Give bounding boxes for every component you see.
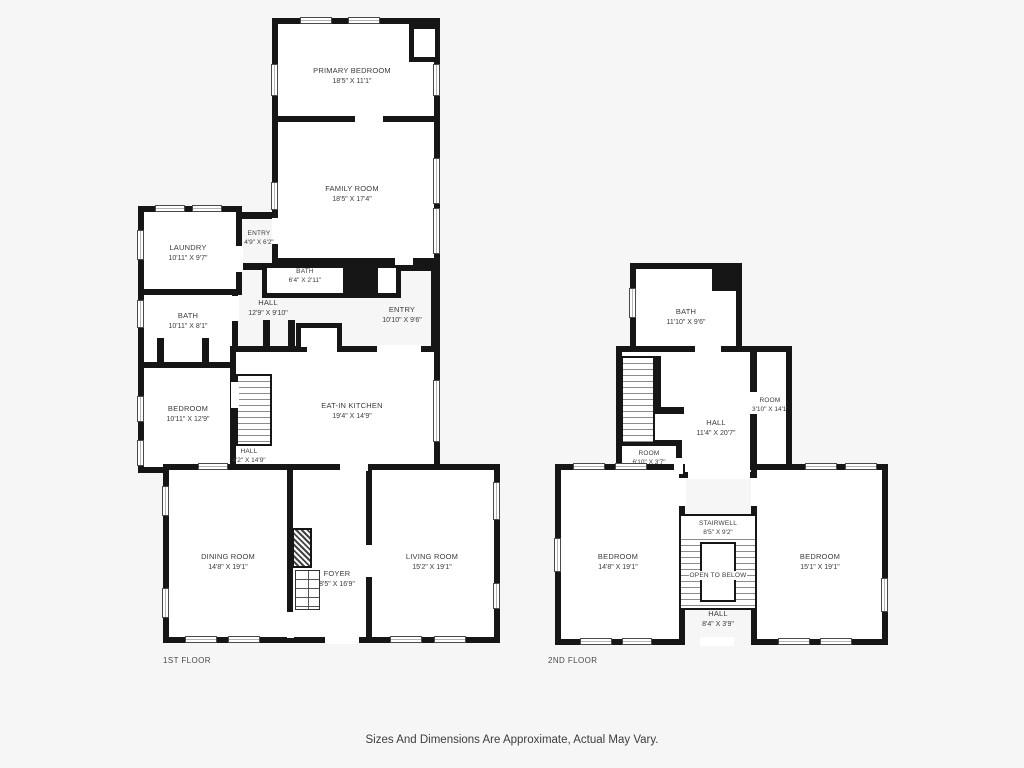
window [433, 380, 440, 442]
window [137, 230, 144, 260]
door-opening [377, 345, 421, 353]
room-name: BEDROOM [146, 404, 230, 415]
room-name: EAT-IN KITCHEN [292, 401, 412, 412]
room-dims: 15'2" X 19'1" [382, 563, 482, 573]
label-dining-room: DINING ROOM 14'8" X 19'1" [178, 552, 278, 572]
window [162, 486, 169, 516]
label-bedroom-right-2: BEDROOM 15'1" X 19'1" [770, 552, 870, 572]
label-bath-small: BATH 6'4" X 2'11" [266, 267, 344, 285]
room-name: HALL [676, 418, 756, 429]
window [162, 588, 169, 618]
wall-room-narrow-1 [750, 352, 757, 392]
door-opening [231, 382, 239, 408]
window [137, 440, 144, 466]
window [573, 463, 605, 470]
floor-plan-page: PRIMARY BEDROOM 18'5" X 11'1" FAMILY ROO… [0, 0, 1024, 768]
label-bath: BATH 10'11" X 8'1" [146, 311, 230, 331]
wall-chimney-block [345, 263, 375, 298]
label-open-to-below: OPEN TO BELOW [689, 571, 747, 580]
room-dims: 10'11" X 12'9" [146, 415, 230, 425]
door-opening [695, 345, 721, 354]
label-entry-side: ENTRY 10'10" X 9'6" [360, 305, 444, 325]
door-opening [679, 478, 686, 506]
room-dims: 10'10" X 9'6" [360, 316, 444, 326]
wall-entry-bottom [240, 263, 264, 270]
room-dims: 10'11" X 9'7" [146, 254, 230, 264]
room-dims: 4'2" X 14'9" [212, 456, 286, 465]
window [192, 205, 222, 212]
room-dims: 8'4" X 3'9" [682, 620, 754, 630]
room-dims: 15'1" X 19'1" [770, 563, 870, 573]
room-name: BEDROOM [568, 552, 668, 563]
window [881, 578, 888, 612]
door-opening [340, 463, 368, 471]
room-dims: 6'4" X 2'11" [266, 276, 344, 285]
room-name: ROOM [614, 449, 684, 458]
room-dims: 18'5" X 17'4" [292, 195, 412, 205]
wall-hall-stub-2 [288, 320, 295, 350]
door-opening [235, 246, 243, 272]
window [185, 636, 217, 643]
label-primary-bedroom: PRIMARY BEDROOM 18'5" X 11'1" [292, 66, 412, 86]
room-name: FAMILY ROOM [292, 184, 412, 195]
label-bedroom: BEDROOM 10'11" X 12'9" [146, 404, 230, 424]
label-hall-main: HALL 12'9" X 9'10" [228, 298, 308, 318]
room-dims: 11'10" X 9'6" [646, 318, 726, 328]
room-name: HALL [212, 447, 286, 456]
wall-stairs-side [654, 356, 661, 414]
door-opening [307, 345, 337, 353]
label-hall-lower-2: HALL 8'4" X 3'9" [682, 609, 754, 629]
label-hall-lower: HALL 4'2" X 14'9" [212, 447, 286, 465]
room-name: BEDROOM [770, 552, 870, 563]
window [778, 638, 810, 645]
window [137, 300, 144, 328]
room-dims: 18'5" X 11'1" [292, 77, 412, 87]
wall-bath-stub-1 [157, 338, 164, 366]
room-name: FOYER [297, 569, 377, 580]
room-dims: 8'5" X 16'9" [297, 580, 377, 590]
room-dims: 4'9" X 6'2" [228, 238, 290, 247]
window [493, 482, 500, 520]
window [434, 636, 466, 643]
label-living-room: LIVING ROOM 15'2" X 19'1" [382, 552, 482, 572]
room-name: ROOM [752, 396, 788, 405]
label-room-narrow: ROOM 3'10" X 14'1" [752, 396, 788, 414]
window [493, 583, 500, 609]
door-opening [355, 116, 383, 123]
window [433, 64, 440, 96]
label-hall-upper-2: HALL 11'4" X 20'7" [676, 418, 756, 438]
room-name: BATH [266, 267, 344, 276]
room-dims: 3'10" X 14'1" [752, 405, 788, 414]
room-dims: 14'8" X 19'1" [178, 563, 278, 573]
window [820, 638, 852, 645]
wall-bath-stub-2 [202, 338, 209, 366]
stairs-hall-upper [621, 356, 655, 444]
room-name: STAIRWELL [681, 519, 755, 528]
window [580, 638, 612, 645]
room-dims: 10'11" X 8'1" [146, 322, 230, 332]
room-name: LIVING ROOM [382, 552, 482, 563]
room-dims: 12'9" X 9'10" [228, 309, 308, 319]
closet-primary-bedroom [409, 24, 440, 62]
label-room-small: ROOM 6'10" X 3'7" [614, 449, 684, 467]
room-dims: 8'5" X 9'2" [681, 528, 755, 537]
label-stairwell: STAIRWELL 8'5" X 9'2" [681, 519, 755, 537]
room-dims: 14'8" X 19'1" [568, 563, 668, 573]
wall-entry-top [242, 212, 272, 219]
first-floor-label: 1ST FLOOR [163, 656, 211, 665]
label-laundry: LAUNDRY 10'11" X 9'7" [146, 243, 230, 263]
label-family-room: FAMILY ROOM 18'5" X 17'4" [292, 184, 412, 204]
window [155, 205, 185, 212]
window [390, 636, 422, 643]
window [622, 638, 652, 645]
door-opening [751, 478, 758, 506]
window [554, 538, 561, 572]
window [433, 208, 440, 254]
label-kitchen: EAT-IN KITCHEN 19'4" X 14'9" [292, 401, 412, 421]
window [300, 17, 332, 24]
room-name: BATH [146, 311, 230, 322]
room-name: BATH [646, 307, 726, 318]
label-bedroom-left-2: BEDROOM 14'8" X 19'1" [568, 552, 668, 572]
window [845, 463, 877, 470]
wall-bath-closet-block [712, 263, 742, 291]
window [271, 64, 278, 96]
door-opening [287, 612, 294, 638]
window [228, 636, 260, 643]
window [137, 396, 144, 422]
door-opening [688, 470, 750, 479]
wall-stairs-stub [654, 407, 684, 414]
door-opening [700, 637, 734, 646]
label-foyer: FOYER 8'5" X 16'9" [297, 569, 377, 589]
room-dims: 6'10" X 3'7" [614, 458, 684, 467]
window [433, 158, 440, 204]
room-name: PRIMARY BEDROOM [292, 66, 412, 77]
window [629, 288, 636, 318]
label-entry-upper: ENTRY 4'9" X 6'2" [228, 229, 290, 247]
window [271, 182, 278, 210]
second-floor-label: 2ND FLOOR [548, 656, 597, 665]
room-name: OPEN TO BELOW [689, 571, 747, 580]
room-dims: 19'4" X 14'9" [292, 412, 412, 422]
stairs-kitchen [236, 374, 272, 446]
door-opening [395, 258, 413, 265]
room-name: ENTRY [360, 305, 444, 316]
room-name: DINING ROOM [178, 552, 278, 563]
room-name: ENTRY [228, 229, 290, 238]
closet-hall [373, 263, 401, 298]
stairs-foyer-hatch [292, 528, 312, 568]
label-bath-2: BATH 11'10" X 9'6" [646, 307, 726, 327]
window [348, 17, 380, 24]
room-name: HALL [228, 298, 308, 309]
room-name: HALL [682, 609, 754, 620]
disclaimer-text: Sizes And Dimensions Are Approximate, Ac… [0, 734, 1024, 746]
door-opening-front [325, 636, 359, 644]
window [805, 463, 837, 470]
room-name: LAUNDRY [146, 243, 230, 254]
wall-hall-stub-1 [263, 320, 270, 350]
room-dims: 11'4" X 20'7" [676, 429, 756, 439]
